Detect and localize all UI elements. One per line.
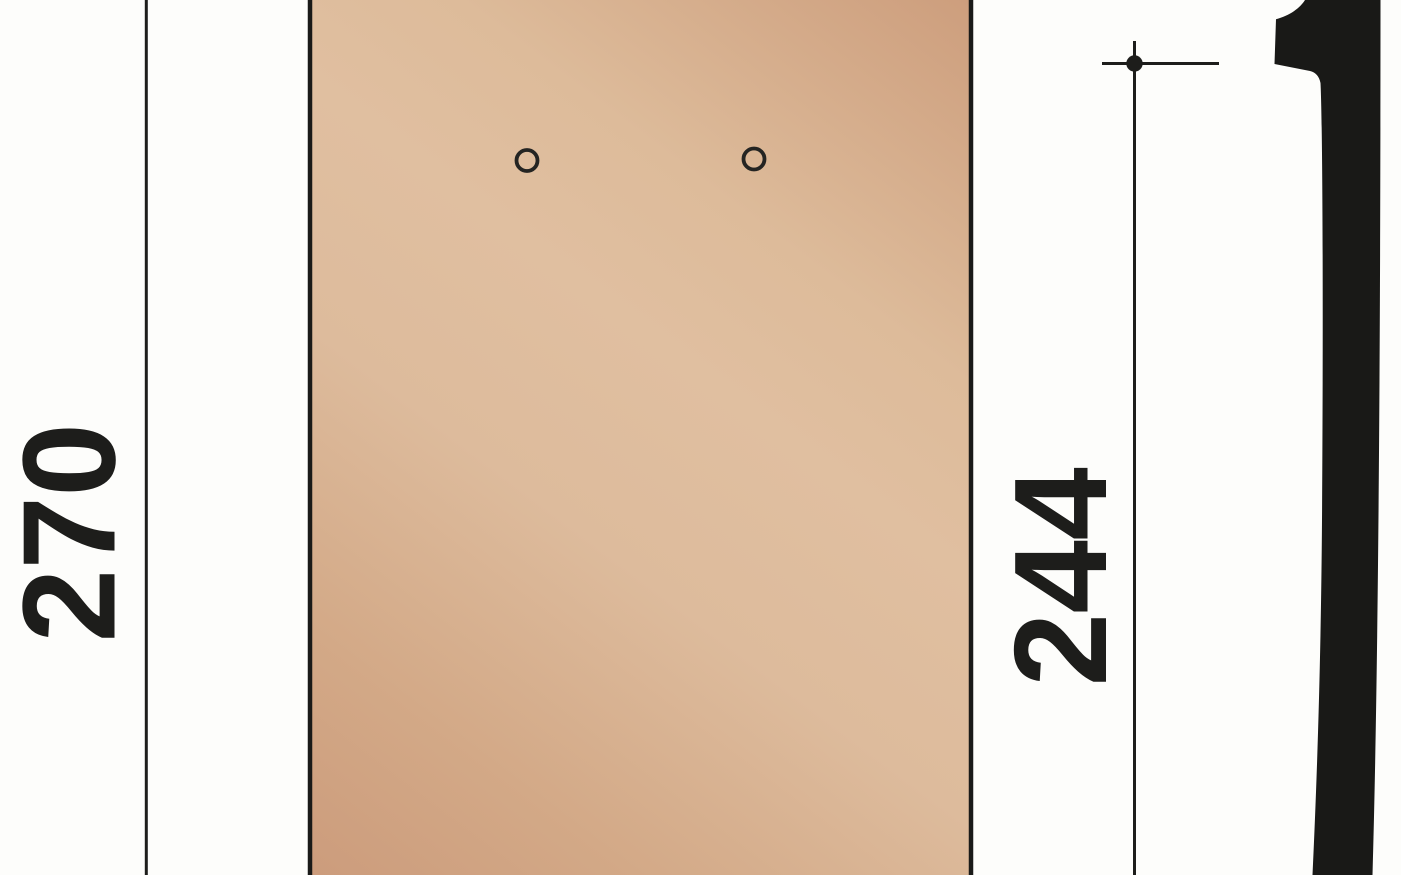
svg-text:270: 270 <box>0 424 143 643</box>
svg-text:244: 244 <box>987 468 1134 687</box>
